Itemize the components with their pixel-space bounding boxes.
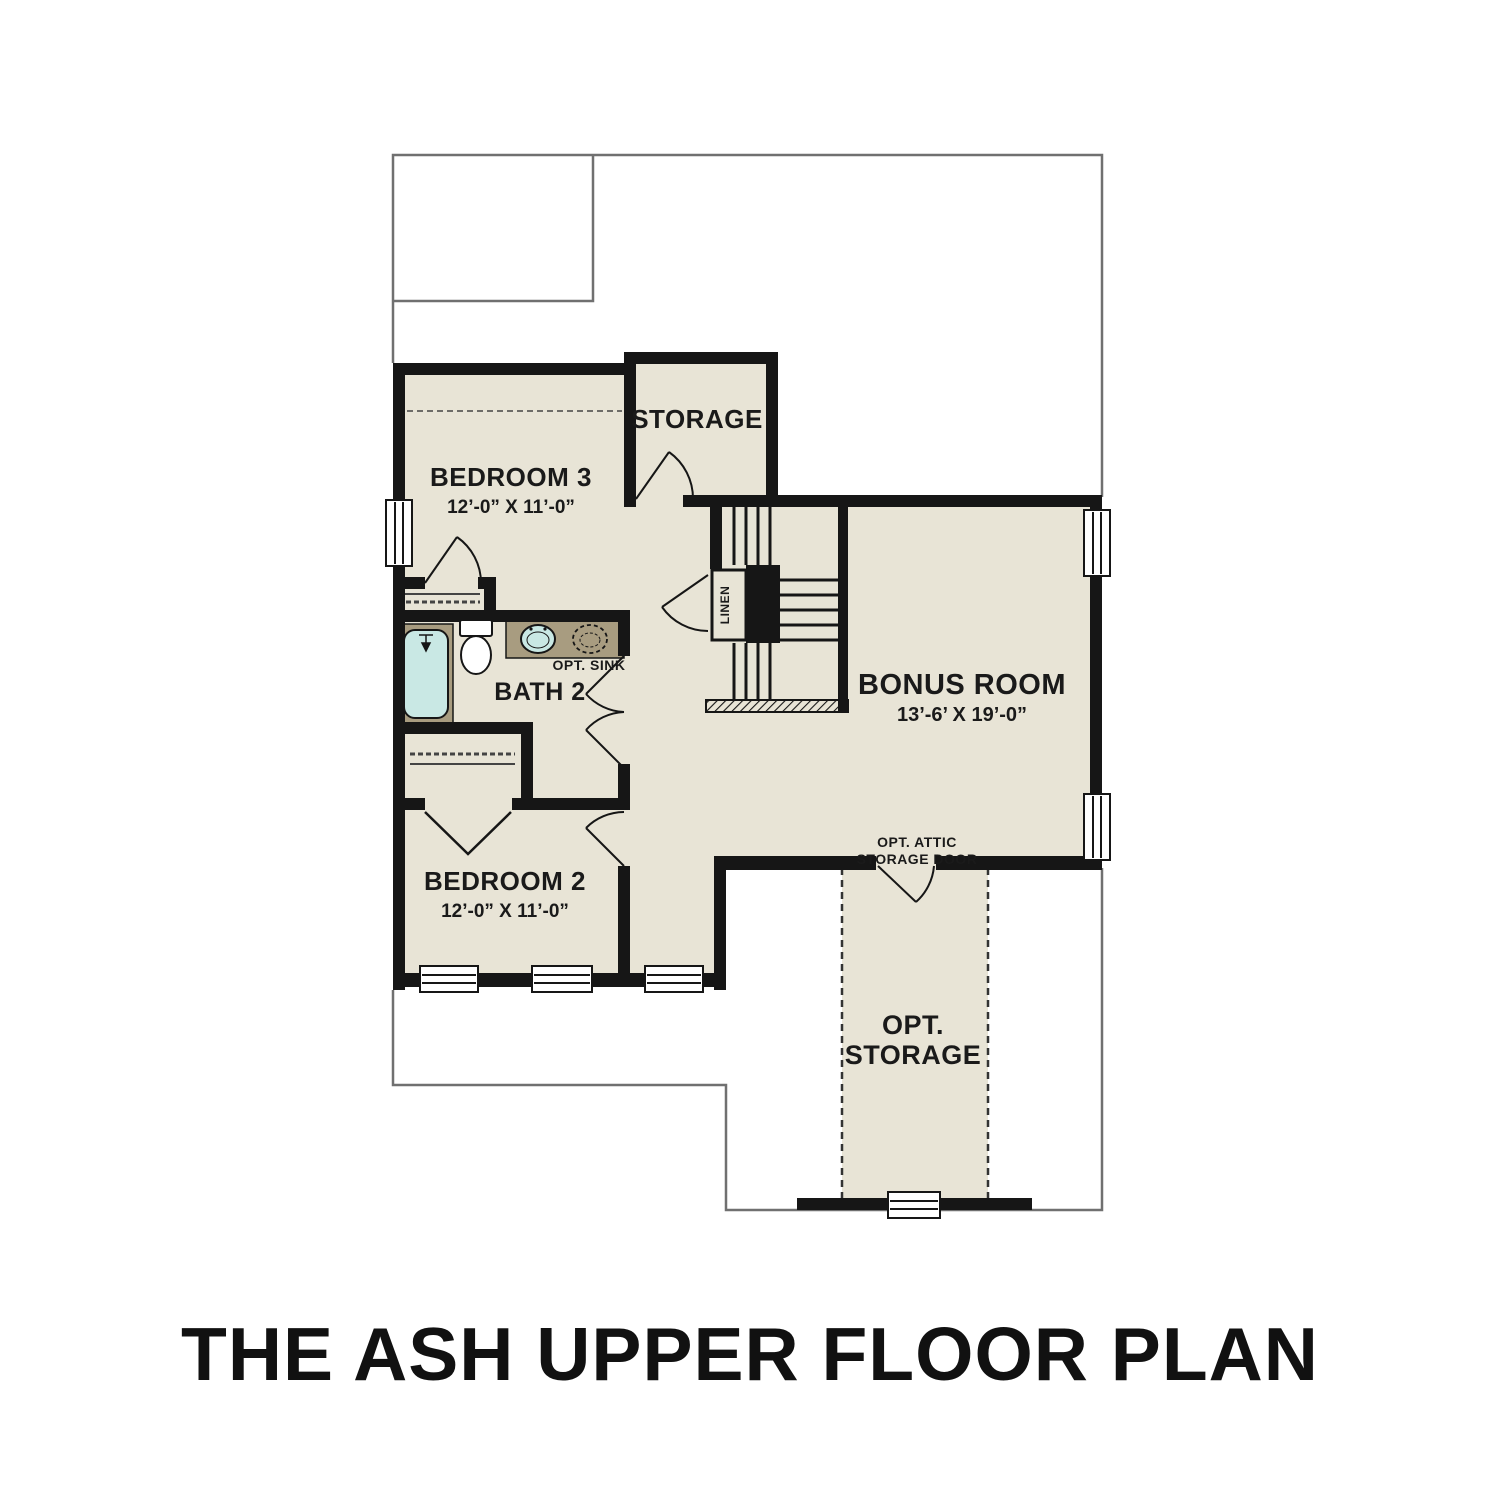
bonus-room-label: BONUS ROOM — [858, 669, 1066, 701]
attic-label-line1: OPT. ATTIC — [877, 834, 957, 850]
bath2-label: BATH 2 — [494, 678, 585, 706]
window-bedroom2-right — [532, 966, 592, 992]
linen-label: LINEN — [718, 586, 732, 625]
bedroom3-label: BEDROOM 3 — [430, 462, 592, 492]
window-opt-storage — [888, 1192, 940, 1218]
window-bonus-right-lower — [1084, 794, 1110, 860]
window-bedroom2-left — [420, 966, 478, 992]
bonus-room-dims: 13’-6’ X 19’-0” — [897, 704, 1027, 726]
window-bonus-right-upper — [1084, 510, 1110, 576]
opt-storage-label-line1: OPT. — [882, 1010, 944, 1040]
stair-rail — [706, 700, 848, 712]
bathtub — [404, 630, 448, 718]
bedroom2-dims: 12’-0” X 11’-0” — [441, 901, 569, 922]
storage-label: STORAGE — [631, 404, 763, 434]
floor-plan-canvas: BEDROOM 3 12’-0” X 11’-0” STORAGE BATH 2… — [0, 0, 1500, 1500]
bedroom3-dims: 12’-0” X 11’-0” — [447, 497, 575, 518]
window-hall-bottom — [645, 966, 703, 992]
opt-sink-label: OPT. SINK — [553, 657, 626, 673]
sink — [521, 625, 555, 653]
opt-storage-label-line2: STORAGE — [845, 1040, 982, 1070]
attic-label-line2: STORAGE DOOR — [857, 851, 978, 867]
bedroom2-label: BEDROOM 2 — [424, 866, 586, 896]
toilet — [460, 620, 492, 674]
window-bedroom3-left — [386, 500, 412, 566]
floor-plan-page: BEDROOM 3 12’-0” X 11’-0” STORAGE BATH 2… — [0, 0, 1500, 1500]
plan-title: THE ASH UPPER FLOOR PLAN — [181, 1312, 1319, 1396]
